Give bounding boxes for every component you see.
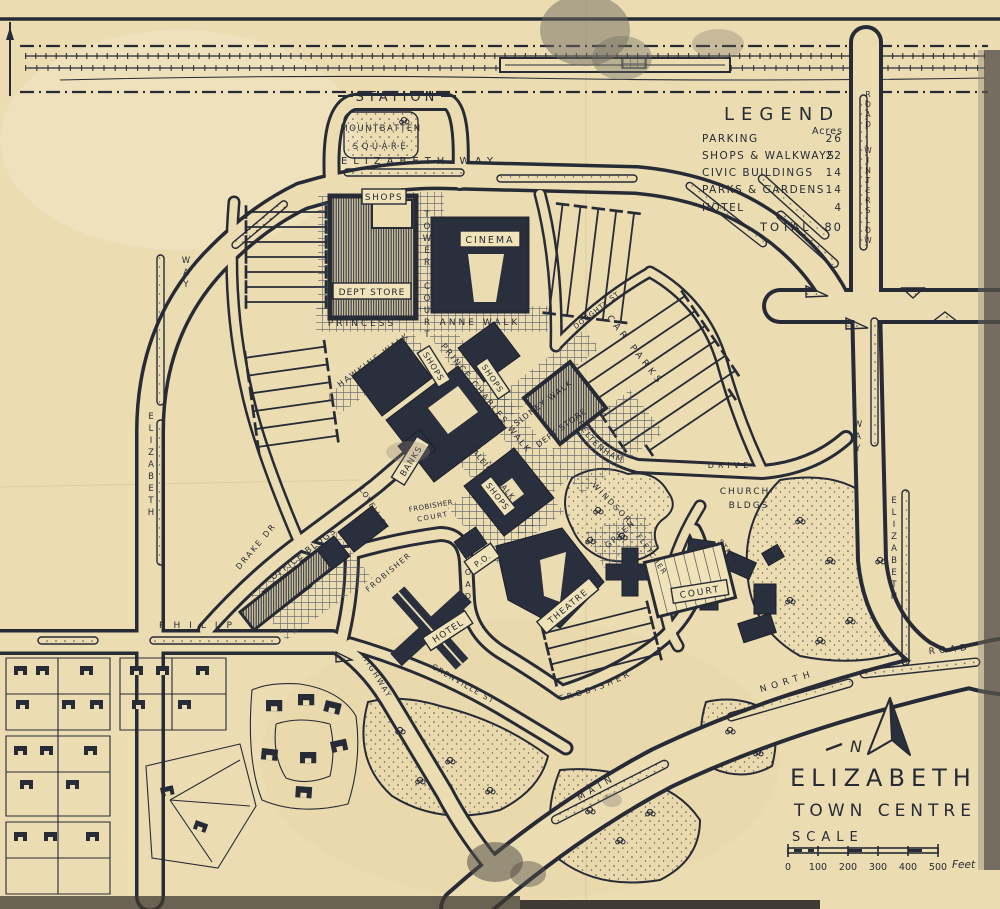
legend-total-label: TOTAL bbox=[759, 220, 811, 234]
church-bldgs-label-2: BLDGS bbox=[729, 501, 770, 511]
scale-tick: 500 bbox=[929, 862, 947, 873]
town-centre-map: STATION MOUNTBATTEN SQUARE ELIZABETH WAY… bbox=[0, 0, 1000, 909]
legend-total-value: 80 bbox=[824, 220, 843, 234]
princess-label: PRINCESS bbox=[328, 319, 396, 329]
winterslow-road-label: WINTERSLOW bbox=[863, 146, 872, 246]
elizabeth-way-left-label: ELIZABETH bbox=[146, 412, 156, 520]
legend-title: LEGEND bbox=[724, 104, 840, 125]
mountbatten-square-label: MOUNTBATTEN bbox=[340, 124, 421, 134]
station-label: STATION bbox=[356, 90, 439, 105]
legend-item-value: 4 bbox=[834, 202, 843, 214]
legend-item-value: 26 bbox=[826, 133, 843, 145]
philip-label: PHILIP bbox=[159, 621, 241, 631]
legend-item-value: 14 bbox=[826, 167, 843, 179]
cinema-label: CINEMA bbox=[465, 235, 514, 246]
legend-item-label: HOTEL bbox=[702, 202, 745, 214]
legend-item-label: CIVIC BUILDINGS bbox=[702, 167, 814, 179]
elizabeth-way-left-label-2: WAY bbox=[181, 256, 191, 292]
scale-tick: 100 bbox=[809, 862, 827, 873]
map-canvas: STATION MOUNTBATTEN SQUARE ELIZABETH WAY… bbox=[0, 0, 1000, 909]
legend-item-value: 14 bbox=[826, 184, 843, 196]
winterslow-road-label-2: ROAD bbox=[864, 90, 873, 130]
legend-item-label: PARKS & GARDENS bbox=[702, 184, 825, 196]
map-subtitle: TOWN CENTRE bbox=[793, 801, 976, 821]
legend-item-label: PARKING bbox=[702, 133, 759, 145]
scale-tick: 300 bbox=[869, 862, 887, 873]
scale-tick: 0 bbox=[785, 862, 791, 873]
scale-tick: 400 bbox=[899, 862, 917, 873]
elizabeth-way-top-label: ELIZABETH WAY bbox=[341, 156, 499, 167]
scale-tick: 200 bbox=[839, 862, 857, 873]
shops-top-label: SHOPS bbox=[365, 193, 403, 203]
north-letter: N bbox=[850, 737, 862, 756]
mountbatten-square-label-2: SQUARE bbox=[353, 142, 409, 152]
legend-item-label: SHOPS & WALKWAYS bbox=[702, 150, 835, 162]
church-bldgs-label: CHURCH bbox=[720, 487, 771, 497]
scale-label: SCALE bbox=[792, 830, 864, 845]
elizabeth-way-right-label-2: WAY bbox=[853, 420, 863, 456]
dept-store-top-label: DEPT STORE bbox=[339, 288, 406, 298]
map-title: ELIZABETH bbox=[790, 764, 977, 792]
cheltenham-drive-label-2: DRIVE bbox=[708, 461, 753, 470]
elizabeth-way-right-label: ELIZABETH bbox=[889, 496, 899, 604]
legend-item-value: 22 bbox=[826, 150, 843, 162]
anne-walk-label: ANNE WALK bbox=[440, 318, 521, 328]
tower-court-label: TOWER COURT bbox=[422, 210, 432, 342]
scale-unit: Feet bbox=[952, 859, 976, 871]
